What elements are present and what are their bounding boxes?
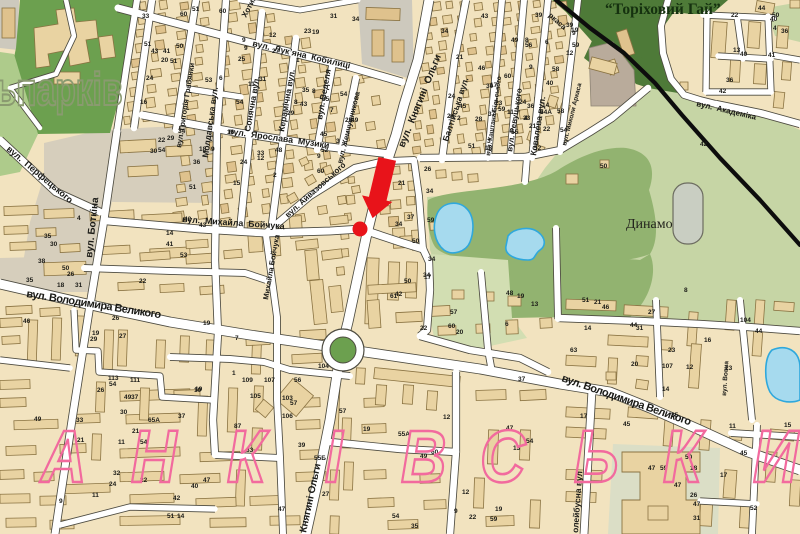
svg-text:27: 27 bbox=[272, 48, 280, 55]
svg-text:6: 6 bbox=[505, 321, 509, 328]
svg-text:60: 60 bbox=[317, 168, 325, 175]
svg-text:16: 16 bbox=[140, 99, 148, 106]
svg-text:9: 9 bbox=[572, 30, 576, 37]
svg-text:63: 63 bbox=[570, 347, 578, 354]
svg-text:46: 46 bbox=[478, 65, 486, 72]
svg-text:24: 24 bbox=[447, 113, 455, 120]
svg-text:54: 54 bbox=[526, 438, 534, 445]
svg-text:12: 12 bbox=[462, 489, 470, 496]
svg-text:51: 51 bbox=[192, 6, 200, 13]
svg-text:35: 35 bbox=[302, 87, 310, 94]
svg-text:23: 23 bbox=[668, 347, 676, 354]
svg-text:36: 36 bbox=[527, 103, 535, 110]
svg-text:45: 45 bbox=[623, 421, 631, 428]
svg-text:37: 37 bbox=[407, 214, 415, 221]
svg-text:51: 51 bbox=[144, 41, 152, 48]
svg-text:24: 24 bbox=[109, 481, 117, 488]
svg-text:34: 34 bbox=[395, 221, 403, 228]
svg-text:31: 31 bbox=[693, 515, 701, 522]
svg-text:19: 19 bbox=[495, 506, 503, 513]
svg-text:48: 48 bbox=[275, 147, 283, 154]
svg-text:36: 36 bbox=[193, 159, 201, 166]
svg-text:34: 34 bbox=[426, 188, 434, 195]
svg-text:35: 35 bbox=[322, 96, 330, 103]
svg-text:33: 33 bbox=[523, 115, 531, 122]
svg-text:29: 29 bbox=[90, 336, 98, 343]
svg-text:В: В bbox=[401, 415, 446, 498]
svg-text:21: 21 bbox=[594, 299, 602, 306]
svg-text:3: 3 bbox=[336, 138, 340, 145]
svg-text:18: 18 bbox=[57, 282, 65, 289]
svg-text:106: 106 bbox=[282, 413, 293, 420]
svg-text:35: 35 bbox=[411, 523, 419, 530]
svg-text:1: 1 bbox=[296, 57, 300, 64]
svg-text:52: 52 bbox=[750, 505, 758, 512]
svg-text:8: 8 bbox=[312, 88, 316, 95]
svg-text:26: 26 bbox=[424, 166, 432, 173]
svg-text:2: 2 bbox=[273, 172, 277, 179]
svg-text:Ь: Ь bbox=[574, 415, 619, 498]
svg-text:46: 46 bbox=[602, 304, 610, 311]
svg-text:24: 24 bbox=[240, 159, 248, 166]
svg-text:30: 30 bbox=[486, 83, 494, 90]
svg-text:20: 20 bbox=[456, 329, 464, 336]
svg-text:26: 26 bbox=[97, 387, 105, 394]
svg-text:9: 9 bbox=[244, 45, 248, 52]
svg-text:42: 42 bbox=[700, 141, 708, 148]
svg-text:50: 50 bbox=[176, 43, 184, 50]
svg-text:45: 45 bbox=[740, 450, 748, 457]
svg-text:111: 111 bbox=[130, 377, 141, 384]
svg-text:16: 16 bbox=[227, 129, 235, 136]
svg-text:33: 33 bbox=[142, 13, 150, 20]
svg-text:59: 59 bbox=[490, 516, 498, 523]
svg-text:20: 20 bbox=[161, 57, 169, 64]
svg-text:60: 60 bbox=[219, 8, 227, 15]
svg-text:37: 37 bbox=[131, 394, 139, 401]
svg-text:54А: 54А bbox=[540, 109, 552, 116]
svg-text:26: 26 bbox=[67, 271, 75, 278]
svg-text:14: 14 bbox=[166, 230, 174, 237]
svg-text:2: 2 bbox=[457, 115, 461, 122]
svg-text:57: 57 bbox=[450, 309, 458, 316]
svg-text:7: 7 bbox=[330, 107, 334, 114]
svg-text:60: 60 bbox=[448, 323, 456, 330]
svg-text:51: 51 bbox=[170, 58, 178, 65]
svg-text:40: 40 bbox=[740, 51, 748, 58]
svg-text:22: 22 bbox=[158, 137, 166, 144]
svg-text:113: 113 bbox=[108, 375, 119, 382]
svg-text:22: 22 bbox=[469, 514, 477, 521]
svg-text:47: 47 bbox=[648, 465, 656, 472]
svg-text:9: 9 bbox=[59, 498, 63, 505]
svg-text:К: К bbox=[663, 415, 706, 498]
svg-text:19: 19 bbox=[363, 426, 371, 433]
svg-text:“Торіховий Гай”: “Торіховий Гай” bbox=[605, 1, 721, 18]
svg-text:35: 35 bbox=[44, 233, 52, 240]
svg-text:19: 19 bbox=[312, 29, 320, 36]
svg-text:54: 54 bbox=[560, 127, 568, 134]
svg-text:4: 4 bbox=[77, 215, 81, 222]
svg-text:46: 46 bbox=[23, 318, 31, 325]
svg-text:3: 3 bbox=[487, 138, 491, 145]
svg-text:20: 20 bbox=[631, 361, 639, 368]
svg-text:А: А bbox=[39, 415, 86, 498]
svg-text:30: 30 bbox=[50, 241, 58, 248]
svg-text:23: 23 bbox=[725, 365, 733, 372]
svg-text:11: 11 bbox=[729, 423, 736, 430]
svg-text:29: 29 bbox=[167, 135, 175, 142]
svg-text:С: С bbox=[480, 415, 527, 498]
svg-text:51: 51 bbox=[582, 297, 590, 304]
svg-text:21: 21 bbox=[529, 123, 537, 130]
svg-text:44: 44 bbox=[758, 5, 766, 12]
svg-text:104: 104 bbox=[318, 363, 329, 370]
svg-text:50: 50 bbox=[772, 12, 780, 19]
svg-text:21: 21 bbox=[456, 54, 464, 61]
svg-text:18: 18 bbox=[485, 145, 493, 152]
svg-text:7: 7 bbox=[235, 335, 239, 342]
svg-text:28: 28 bbox=[475, 116, 483, 123]
svg-text:49: 49 bbox=[511, 37, 519, 44]
svg-text:17: 17 bbox=[424, 274, 432, 281]
svg-text:10: 10 bbox=[194, 387, 202, 394]
svg-text:34: 34 bbox=[178, 128, 186, 135]
svg-text:І: І bbox=[325, 415, 344, 498]
svg-text:11: 11 bbox=[92, 492, 99, 499]
svg-text:58: 58 bbox=[552, 66, 560, 73]
svg-text:17: 17 bbox=[720, 472, 728, 479]
svg-text:50: 50 bbox=[62, 265, 70, 272]
svg-text:8: 8 bbox=[684, 287, 688, 294]
svg-text:50: 50 bbox=[600, 163, 608, 170]
svg-text:52: 52 bbox=[321, 147, 329, 154]
svg-text:109: 109 bbox=[242, 377, 253, 384]
svg-text:32: 32 bbox=[113, 470, 121, 477]
svg-text:41: 41 bbox=[166, 241, 174, 248]
svg-text:42: 42 bbox=[184, 216, 192, 223]
svg-text:4: 4 bbox=[773, 25, 777, 32]
svg-text:16: 16 bbox=[704, 337, 712, 344]
svg-text:36: 36 bbox=[781, 28, 789, 35]
svg-text:39: 39 bbox=[298, 442, 306, 449]
svg-text:39: 39 bbox=[566, 22, 574, 29]
svg-text:42: 42 bbox=[719, 88, 727, 95]
svg-text:14: 14 bbox=[584, 325, 592, 332]
svg-text:9: 9 bbox=[317, 153, 321, 160]
svg-text:12: 12 bbox=[257, 155, 265, 162]
svg-text:15: 15 bbox=[233, 180, 241, 187]
svg-text:14: 14 bbox=[662, 386, 670, 393]
svg-text:59: 59 bbox=[498, 106, 506, 113]
svg-text:105: 105 bbox=[250, 393, 261, 400]
svg-text:31: 31 bbox=[259, 76, 267, 83]
svg-text:60: 60 bbox=[504, 73, 512, 80]
svg-text:8: 8 bbox=[294, 99, 298, 106]
svg-text:11: 11 bbox=[248, 81, 255, 88]
svg-text:59: 59 bbox=[572, 42, 580, 49]
svg-text:13: 13 bbox=[531, 301, 539, 308]
svg-text:9: 9 bbox=[454, 508, 458, 515]
svg-text:54: 54 bbox=[392, 513, 400, 520]
svg-text:57: 57 bbox=[339, 408, 347, 415]
svg-text:41: 41 bbox=[768, 52, 776, 59]
svg-text:9: 9 bbox=[529, 64, 533, 71]
svg-text:37: 37 bbox=[178, 413, 186, 420]
svg-text:55: 55 bbox=[511, 129, 519, 136]
svg-text:34: 34 bbox=[441, 28, 449, 35]
svg-text:34: 34 bbox=[352, 16, 360, 23]
svg-text:41: 41 bbox=[163, 48, 171, 55]
svg-text:27: 27 bbox=[648, 309, 656, 316]
svg-text:44: 44 bbox=[755, 328, 763, 335]
svg-text:ьпарків: ьпарків bbox=[0, 64, 122, 115]
svg-text:24: 24 bbox=[519, 99, 527, 106]
svg-text:22: 22 bbox=[731, 12, 739, 19]
svg-text:45: 45 bbox=[459, 103, 467, 110]
svg-text:9: 9 bbox=[242, 37, 246, 44]
svg-text:38: 38 bbox=[38, 258, 46, 265]
svg-text:36: 36 bbox=[726, 77, 734, 84]
svg-text:59: 59 bbox=[427, 217, 435, 224]
svg-text:11: 11 bbox=[118, 439, 125, 446]
svg-text:6: 6 bbox=[219, 75, 223, 82]
svg-text:51: 51 bbox=[167, 513, 175, 520]
svg-text:54: 54 bbox=[236, 99, 244, 106]
svg-text:39: 39 bbox=[535, 12, 543, 19]
svg-text:54: 54 bbox=[340, 91, 348, 98]
svg-text:14: 14 bbox=[177, 513, 185, 520]
svg-text:18: 18 bbox=[199, 146, 207, 153]
svg-text:53: 53 bbox=[180, 252, 188, 259]
svg-text:31: 31 bbox=[636, 325, 644, 332]
svg-text:30: 30 bbox=[120, 409, 128, 416]
svg-text:29: 29 bbox=[287, 110, 295, 117]
svg-text:22: 22 bbox=[543, 126, 551, 133]
svg-text:52: 52 bbox=[534, 145, 542, 152]
svg-text:56: 56 bbox=[294, 377, 302, 384]
svg-text:12: 12 bbox=[686, 364, 694, 371]
svg-text:1: 1 bbox=[232, 370, 236, 377]
svg-text:43: 43 bbox=[481, 13, 489, 20]
svg-text:12: 12 bbox=[269, 32, 277, 39]
svg-text:50: 50 bbox=[404, 278, 412, 285]
svg-text:6: 6 bbox=[545, 39, 549, 46]
svg-text:61: 61 bbox=[390, 293, 398, 300]
svg-text:50: 50 bbox=[412, 238, 420, 245]
svg-text:Динамо: Динамо bbox=[626, 217, 673, 232]
svg-text:37: 37 bbox=[518, 376, 526, 383]
svg-text:47: 47 bbox=[278, 506, 286, 513]
svg-text:19: 19 bbox=[203, 320, 211, 327]
svg-text:К: К bbox=[227, 415, 270, 498]
svg-text:43: 43 bbox=[151, 48, 159, 55]
svg-text:24: 24 bbox=[146, 75, 154, 82]
svg-text:47: 47 bbox=[203, 477, 211, 484]
svg-text:58: 58 bbox=[557, 108, 565, 115]
svg-text:31: 31 bbox=[330, 13, 338, 20]
svg-text:48: 48 bbox=[506, 290, 514, 297]
svg-text:30: 30 bbox=[150, 148, 158, 155]
svg-text:21: 21 bbox=[398, 180, 406, 187]
svg-text:35: 35 bbox=[26, 277, 34, 284]
svg-text:47: 47 bbox=[693, 501, 701, 508]
svg-text:28: 28 bbox=[345, 117, 353, 124]
svg-text:107: 107 bbox=[264, 377, 275, 384]
svg-text:104: 104 bbox=[740, 317, 751, 324]
svg-text:54: 54 bbox=[109, 381, 117, 388]
svg-text:24: 24 bbox=[448, 93, 456, 100]
svg-text:12: 12 bbox=[566, 50, 574, 57]
svg-text:19: 19 bbox=[517, 293, 525, 300]
svg-text:25: 25 bbox=[238, 56, 246, 63]
svg-text:40: 40 bbox=[546, 80, 554, 87]
svg-text:43: 43 bbox=[199, 222, 207, 229]
svg-text:43: 43 bbox=[300, 101, 308, 108]
svg-text:51: 51 bbox=[189, 184, 197, 191]
svg-text:60: 60 bbox=[180, 11, 188, 18]
svg-text:22: 22 bbox=[139, 278, 147, 285]
svg-text:27: 27 bbox=[119, 333, 127, 340]
svg-text:103: 103 bbox=[282, 395, 293, 402]
svg-text:40: 40 bbox=[191, 483, 199, 490]
svg-text:34: 34 bbox=[428, 256, 436, 263]
svg-text:И: И bbox=[753, 415, 800, 498]
svg-text:11: 11 bbox=[507, 109, 514, 116]
svg-text:9: 9 bbox=[211, 146, 215, 153]
svg-text:45: 45 bbox=[320, 131, 328, 138]
svg-text:54: 54 bbox=[158, 147, 166, 154]
svg-text:14: 14 bbox=[542, 102, 550, 109]
svg-text:31: 31 bbox=[75, 282, 83, 289]
svg-text:51: 51 bbox=[468, 143, 476, 150]
svg-text:19: 19 bbox=[92, 330, 100, 337]
svg-text:37: 37 bbox=[488, 111, 496, 118]
svg-text:22: 22 bbox=[420, 325, 428, 332]
svg-text:8: 8 bbox=[525, 37, 529, 44]
svg-text:23: 23 bbox=[304, 28, 312, 35]
svg-text:107: 107 bbox=[662, 363, 673, 370]
svg-text:53: 53 bbox=[205, 77, 213, 84]
svg-text:26: 26 bbox=[112, 315, 120, 322]
svg-text:Н: Н bbox=[131, 415, 178, 498]
